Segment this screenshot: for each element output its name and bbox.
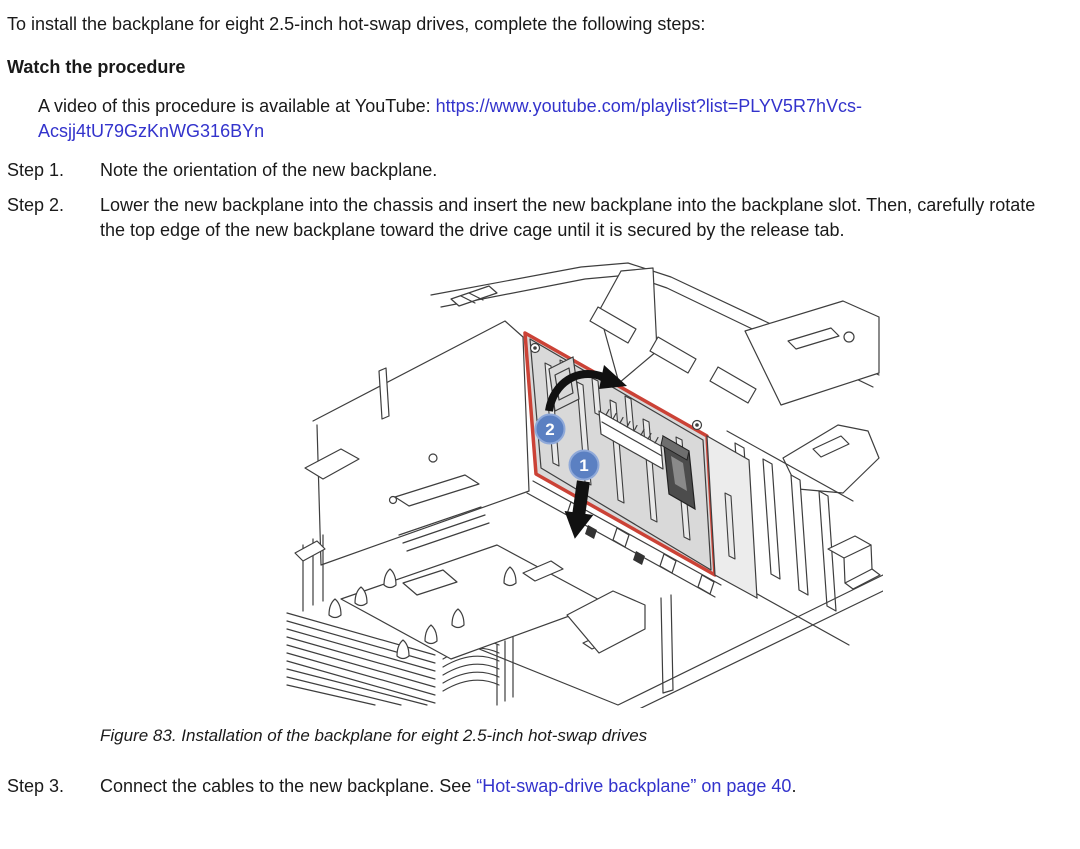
step-3-label: Step 3. xyxy=(7,774,100,799)
intro-text: To install the backplane for eight 2.5-i… xyxy=(7,12,1047,37)
step-3-text: Connect the cables to the new backplane.… xyxy=(100,774,1057,799)
step-1: Step 1. Note the orientation of the new … xyxy=(7,158,1062,183)
figure-illustration: 2 1 xyxy=(283,253,883,708)
watch-procedure-heading: Watch the procedure xyxy=(7,55,1062,80)
callout-1: 1 xyxy=(570,451,599,480)
heatsink xyxy=(287,545,645,705)
step-1-text: Note the orientation of the new backplan… xyxy=(100,158,1057,183)
video-text: A video of this procedure is available a… xyxy=(38,96,436,116)
callout-2-number: 2 xyxy=(545,420,554,439)
callout-1-number: 1 xyxy=(579,456,588,475)
step-3-text-after: . xyxy=(791,776,796,796)
step-3-text-before: Connect the cables to the new backplane.… xyxy=(100,776,476,796)
step-2-text: Lower the new backplane into the chassis… xyxy=(100,193,1057,243)
hot-swap-backplane-link[interactable]: “Hot-swap-drive backplane” on page 40 xyxy=(476,776,791,796)
step-1-label: Step 1. xyxy=(7,158,100,183)
backplane-install-drawing: 2 1 xyxy=(283,253,883,708)
callout-2: 2 xyxy=(536,415,565,444)
step-3: Step 3. Connect the cables to the new ba… xyxy=(7,774,1062,799)
step-2-label: Step 2. xyxy=(7,193,100,218)
figure-caption: Figure 83. Installation of the backplane… xyxy=(100,723,1062,748)
step-2: Step 2. Lower the new backplane into the… xyxy=(7,193,1062,243)
video-paragraph: A video of this procedure is available a… xyxy=(38,94,1046,144)
